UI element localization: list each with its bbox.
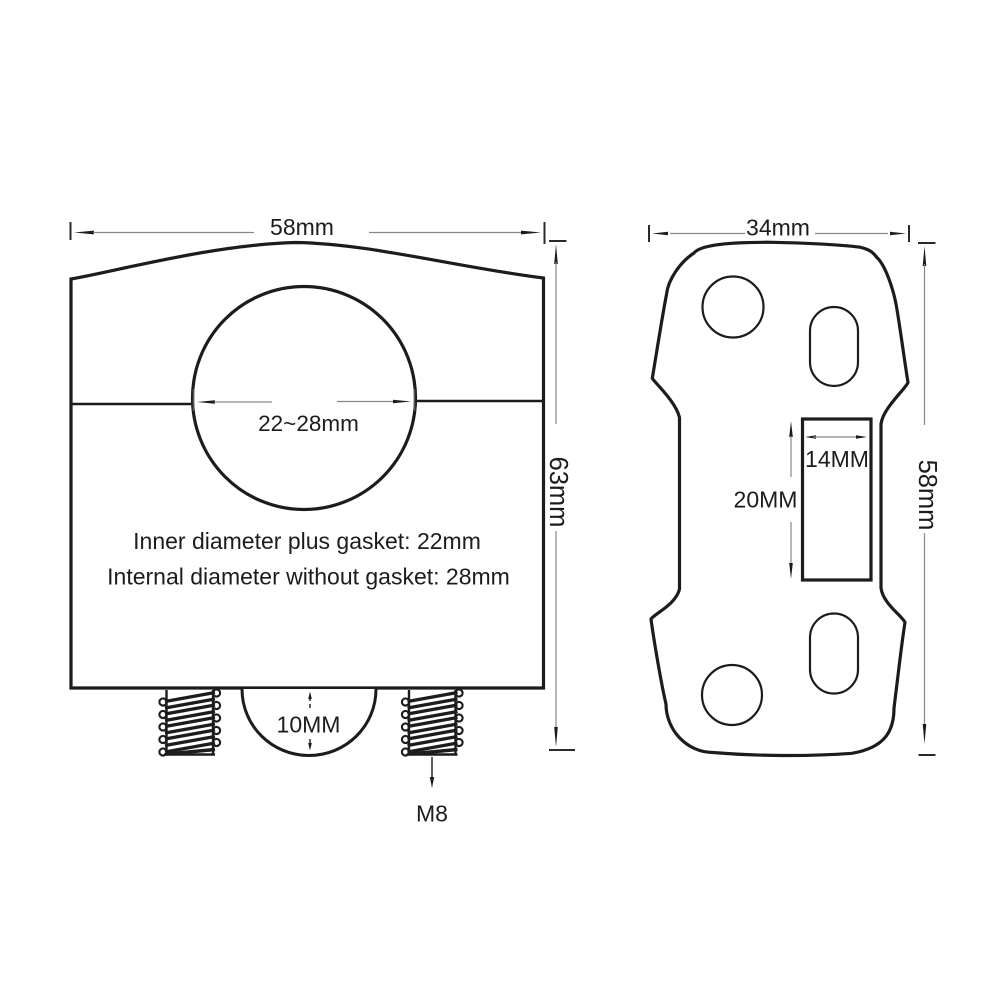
svg-text:M8: M8	[416, 801, 448, 827]
svg-text:58mm: 58mm	[270, 214, 334, 240]
svg-text:34mm: 34mm	[746, 215, 810, 241]
svg-text:20MM: 20MM	[734, 487, 798, 513]
svg-text:14MM: 14MM	[805, 446, 869, 472]
svg-text:58mm: 58mm	[913, 460, 941, 531]
svg-text:63mm: 63mm	[544, 457, 572, 528]
svg-text:Inner diameter plus gasket: 22: Inner diameter plus gasket: 22mm	[133, 528, 481, 554]
svg-text:22~28mm: 22~28mm	[258, 411, 359, 436]
svg-text:Internal diameter without gask: Internal diameter without gasket: 28mm	[107, 564, 510, 590]
svg-text:10MM: 10MM	[277, 712, 341, 738]
